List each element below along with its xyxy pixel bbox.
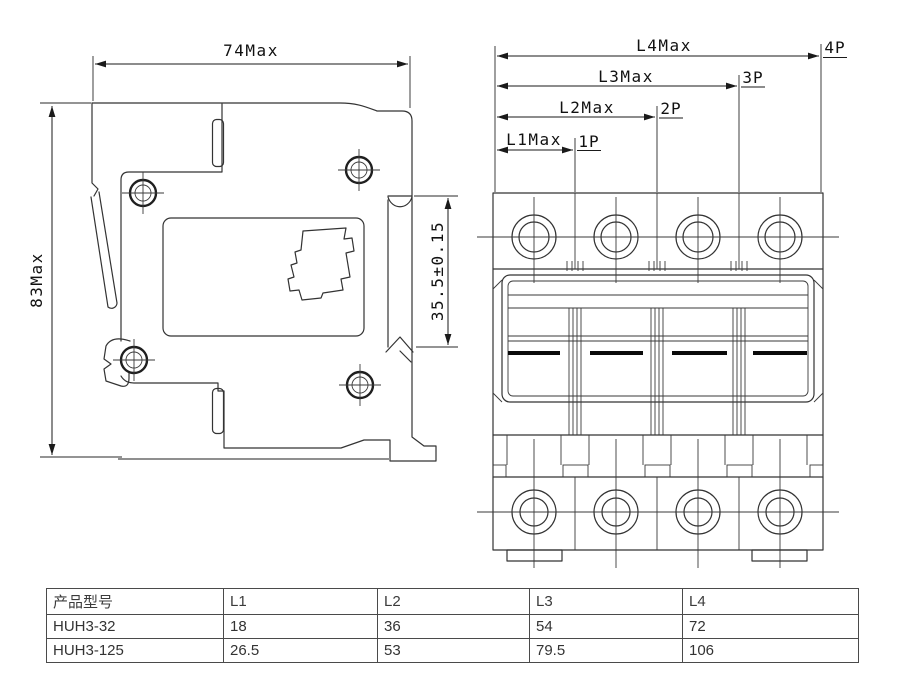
cell-l1: 18 bbox=[224, 615, 378, 639]
pole-dividers bbox=[569, 308, 745, 435]
l3max-label: L3Max bbox=[598, 67, 654, 86]
side-body-outline bbox=[92, 103, 436, 461]
header-l4: L4 bbox=[683, 589, 859, 615]
side-view: 74Max 83Max 35.5±0.15 bbox=[27, 41, 458, 461]
dim-ladder: L1Max L2Max L3Max L4Max 1P 2P 3P 4P bbox=[495, 36, 847, 192]
width-dim-label: 74Max bbox=[223, 41, 279, 60]
header-l3: L3 bbox=[530, 589, 683, 615]
screw-top-right bbox=[338, 149, 380, 191]
dim-height-83max: 83Max bbox=[27, 103, 122, 457]
screw-bottom-right bbox=[339, 364, 381, 406]
cell-l3: 54 bbox=[530, 615, 683, 639]
header-model: 产品型号 bbox=[47, 589, 224, 615]
l1max-label: L1Max bbox=[506, 130, 562, 149]
din-rail-channel bbox=[386, 196, 413, 362]
cell-l2: 36 bbox=[378, 615, 530, 639]
screw-top-left bbox=[122, 172, 164, 214]
pole-label-3p: 3P bbox=[742, 68, 763, 87]
pole-label-4p: 4P bbox=[824, 38, 845, 57]
spec-table: 产品型号 L1 L2 L3 L4 HUH3-32 18 36 54 72 HUH… bbox=[46, 588, 858, 663]
cell-l2: 53 bbox=[378, 639, 530, 663]
tab-pole4 bbox=[752, 550, 807, 561]
din-clip-lever bbox=[91, 192, 117, 308]
handle-pole4 bbox=[753, 351, 807, 355]
header-l2: L2 bbox=[378, 589, 530, 615]
cell-l3: 79.5 bbox=[530, 639, 683, 663]
cell-l4: 72 bbox=[683, 615, 859, 639]
face-plate bbox=[493, 275, 823, 402]
height-dim-label: 83Max bbox=[27, 252, 46, 308]
handle-pole2 bbox=[590, 351, 643, 355]
l2max-label: L2Max bbox=[559, 98, 615, 117]
bottom-toggle-slot bbox=[213, 389, 224, 434]
cell-model: HUH3-125 bbox=[47, 639, 224, 663]
cell-l4: 106 bbox=[683, 639, 859, 663]
handle-pole3 bbox=[672, 351, 727, 355]
l4max-label: L4Max bbox=[636, 36, 692, 55]
top-terminals bbox=[477, 197, 839, 283]
front-body bbox=[477, 193, 839, 568]
pole-label-2p: 2P bbox=[660, 99, 681, 118]
table-row-huh3-32: HUH3-32 18 36 54 72 bbox=[47, 615, 859, 639]
inner-step bbox=[121, 104, 222, 341]
rail-catch-wedge bbox=[386, 337, 413, 352]
table-row-huh3-125: HUH3-125 26.5 53 79.5 106 bbox=[47, 639, 859, 663]
bottom-terminals bbox=[477, 439, 839, 568]
lower-channels bbox=[493, 435, 823, 477]
breaker-dimension-drawing: 74Max 83Max 35.5±0.15 bbox=[0, 0, 900, 699]
pole-label-1p: 1P bbox=[578, 132, 599, 151]
handle-pole1 bbox=[508, 351, 560, 355]
screw-bottom-left bbox=[113, 339, 155, 381]
dim-width-74max: 74Max bbox=[93, 41, 410, 108]
mounting-recess bbox=[163, 218, 364, 336]
left-edge bbox=[92, 103, 98, 196]
table-header-row: 产品型号 L1 L2 L3 L4 bbox=[47, 589, 859, 615]
toggle-handles bbox=[508, 351, 807, 355]
front-view: L1Max L2Max L3Max L4Max 1P 2P 3P 4P bbox=[477, 36, 847, 568]
header-l1: L1 bbox=[224, 589, 378, 615]
pole-boundaries bbox=[575, 193, 739, 550]
front-body-outline bbox=[493, 193, 823, 550]
cell-l1: 26.5 bbox=[224, 639, 378, 663]
drawing-canvas: 74Max 83Max 35.5±0.15 bbox=[0, 0, 900, 585]
dim-rail-35-5: 35.5±0.15 bbox=[414, 196, 458, 347]
cell-model: HUH3-32 bbox=[47, 615, 224, 639]
tab-pole1 bbox=[507, 550, 562, 561]
rail-dim-label: 35.5±0.15 bbox=[428, 221, 447, 321]
latch-detail bbox=[288, 228, 354, 300]
